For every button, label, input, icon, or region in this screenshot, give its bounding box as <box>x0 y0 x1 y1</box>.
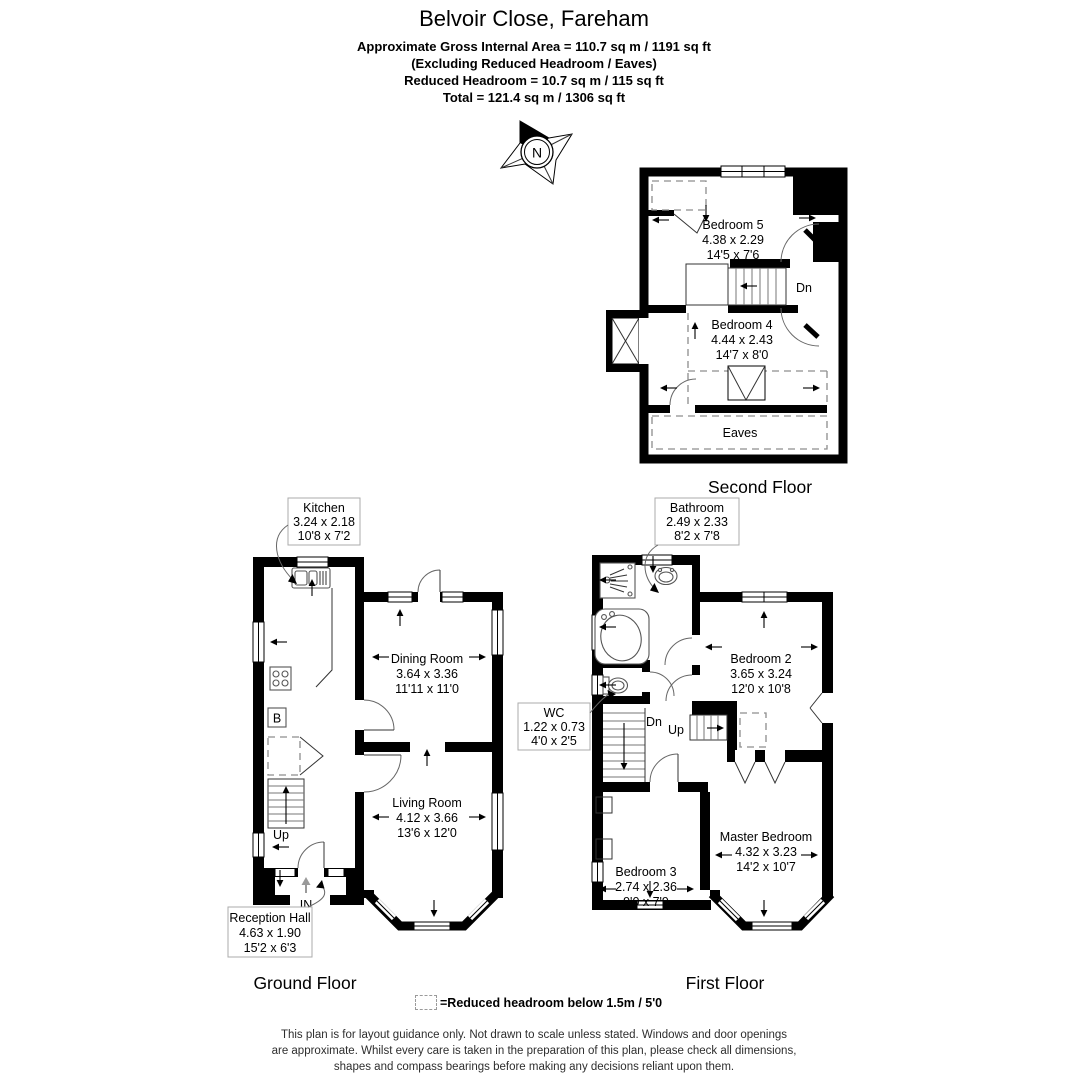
cupboard-reduced-headroom <box>268 737 323 775</box>
wardrobe-reduced-headroom <box>740 713 766 747</box>
hob-icon <box>270 667 291 690</box>
svg-text:1.22 x 0.73: 1.22 x 0.73 <box>523 720 585 734</box>
svg-text:Reception Hall: Reception Hall <box>229 911 310 925</box>
dining-room-label: Dining Room 3.64 x 3.36 11'11 x 11'0 <box>391 652 463 696</box>
svg-text:3.65 x 3.24: 3.65 x 3.24 <box>730 667 792 681</box>
svg-text:2.74 x 2.36: 2.74 x 2.36 <box>615 880 677 894</box>
svg-text:WC: WC <box>544 706 565 720</box>
bedroom2-label: Bedroom 2 3.65 x 3.24 12'0 x 10'8 <box>730 652 792 696</box>
bathtub-icon <box>595 609 649 665</box>
disclaimer-line: This plan is for layout guidance only. N… <box>0 1027 1068 1043</box>
living-door-arc <box>364 755 401 792</box>
stairs-up-icon <box>690 715 727 740</box>
disclaimer: This plan is for layout guidance only. N… <box>0 1027 1068 1075</box>
front-door-arc <box>298 842 324 868</box>
legend-text: =Reduced headroom below 1.5m / 5'0 <box>440 996 662 1010</box>
living-room-label: Living Room 4.12 x 3.66 13'6 x 12'0 <box>392 796 461 840</box>
svg-text:12'0 x 10'8: 12'0 x 10'8 <box>731 682 791 696</box>
eaves-label: Eaves <box>723 426 758 440</box>
reduced-headroom-line: Reduced Headroom = 10.7 sq m / 115 sq ft <box>0 72 1068 89</box>
svg-text:4.38 x 2.29: 4.38 x 2.29 <box>702 233 764 247</box>
svg-text:Bathroom: Bathroom <box>670 501 724 515</box>
dining-door-arc <box>364 700 394 730</box>
svg-text:14'7 x 8'0: 14'7 x 8'0 <box>716 348 769 362</box>
bathroom-label-box: Bathroom 2.49 x 2.33 8'2 x 7'8 <box>655 498 739 545</box>
header-block: Belvoir Close, Fareham Approximate Gross… <box>0 6 1068 106</box>
svg-text:4.63 x 1.90: 4.63 x 1.90 <box>239 926 301 940</box>
bathroom-door-arc <box>665 638 692 665</box>
bedroom2-door-arc <box>666 675 692 701</box>
bedroom4-label: Bedroom 4 4.44 x 2.43 14'7 x 8'0 <box>711 318 773 362</box>
floorplan-page: Belvoir Close, Fareham Approximate Gross… <box>0 0 1068 1080</box>
stairs-down-icon <box>603 708 645 782</box>
bedroom5-window <box>721 166 785 177</box>
bedroom3-side-window <box>592 862 603 882</box>
bedroom3-door-arc <box>650 754 678 782</box>
bedroom5-label: Bedroom 5 4.38 x 2.29 14'5 x 7'6 <box>702 218 764 262</box>
first-floor-title: First Floor <box>645 973 805 994</box>
ground-floor-plan: B Up IN Kitchen 3.24 x 2.18 10' <box>220 495 520 965</box>
svg-text:4.12 x 3.66: 4.12 x 3.66 <box>396 811 458 825</box>
stairs-down-label: Dn <box>646 715 662 729</box>
svg-text:Living Room: Living Room <box>392 796 461 810</box>
master-bay-window <box>712 894 831 930</box>
reception-hall-label-box: Reception Hall 4.63 x 1.90 15'2 x 6'3 <box>228 907 312 957</box>
disclaimer-line: shapes and compass bearings before makin… <box>0 1059 1068 1075</box>
wc-door-arc <box>650 672 674 696</box>
svg-text:2.49 x 2.33: 2.49 x 2.33 <box>666 515 728 529</box>
boiler-icon: B <box>268 708 286 727</box>
svg-text:3.24 x 2.18: 3.24 x 2.18 <box>293 515 355 529</box>
reduced-headroom-swatch <box>415 995 437 1010</box>
gross-area-line: Approximate Gross Internal Area = 110.7 … <box>0 38 1068 55</box>
total-line: Total = 121.4 sq m / 1306 sq ft <box>0 89 1068 106</box>
svg-text:4.32 x 3.23: 4.32 x 3.23 <box>735 845 797 859</box>
basin-icon <box>655 568 677 585</box>
counter-edge <box>316 588 332 687</box>
svg-text:14'2 x 10'7: 14'2 x 10'7 <box>736 860 796 874</box>
bedroom3-label: Bedroom 3 2.74 x 2.36 9'0 x 7'9 <box>615 865 677 909</box>
master-bedroom-label: Master Bedroom 4.32 x 3.23 14'2 x 10'7 <box>720 830 812 874</box>
master-door-leaf <box>735 762 755 783</box>
page-title: Belvoir Close, Fareham <box>0 6 1068 32</box>
stairs-up-label: Up <box>273 828 289 842</box>
svg-text:Master Bedroom: Master Bedroom <box>720 830 812 844</box>
svg-text:Bedroom 2: Bedroom 2 <box>730 652 791 666</box>
entrance-arrow-icon <box>302 877 311 893</box>
svg-text:Bedroom 3: Bedroom 3 <box>615 865 676 879</box>
svg-text:Bedroom 5: Bedroom 5 <box>702 218 763 232</box>
dormer-window <box>606 310 649 372</box>
svg-text:Bedroom 4: Bedroom 4 <box>711 318 772 332</box>
kitchen-window <box>297 557 328 567</box>
stairs-down-label: Dn <box>796 281 812 295</box>
skylight-icon <box>728 366 765 400</box>
first-floor-plan: Dn Up Bathroom 2.49 x 2.33 8'2 x 7'8 WC … <box>500 495 850 965</box>
rear-door-arc <box>418 570 440 592</box>
svg-text:3.64 x 3.36: 3.64 x 3.36 <box>396 667 458 681</box>
second-floor-plan: Dn Bedroom 5 4.38 x 2.29 14'5 x 7'6 <box>600 160 860 470</box>
svg-text:4.44 x 2.43: 4.44 x 2.43 <box>711 333 773 347</box>
svg-text:11'11 x 11'0: 11'11 x 11'0 <box>395 682 459 696</box>
svg-text:14'5 x 7'6: 14'5 x 7'6 <box>707 248 760 262</box>
compass-north-label: N <box>532 145 542 161</box>
kitchen-label-box: Kitchen 3.24 x 2.18 10'8 x 7'2 <box>288 498 360 545</box>
svg-text:10'8 x 7'2: 10'8 x 7'2 <box>298 529 351 543</box>
bedroom2-splay-window <box>810 693 833 723</box>
side-window-hall <box>253 833 264 857</box>
svg-text:Kitchen: Kitchen <box>303 501 345 515</box>
stairs-up-label: Up <box>668 723 684 737</box>
disclaimer-line: are approximate. Whilst every care is ta… <box>0 1043 1068 1059</box>
svg-text:Dining Room: Dining Room <box>391 652 463 666</box>
reduced-headroom-legend: =Reduced headroom below 1.5m / 5'0 <box>415 995 662 1010</box>
bedroom2-window <box>742 592 787 602</box>
ground-floor-title: Ground Floor <box>225 973 385 994</box>
svg-text:15'2 x 6'3: 15'2 x 6'3 <box>244 941 297 955</box>
wc-label-box: WC 1.22 x 0.73 4'0 x 2'5 <box>518 703 590 750</box>
compass-icon: N <box>488 106 598 196</box>
svg-text:8'2 x 7'8: 8'2 x 7'8 <box>674 529 720 543</box>
boiler-label: B <box>273 712 281 726</box>
excluding-line: (Excluding Reduced Headroom / Eaves) <box>0 55 1068 72</box>
svg-text:4'0 x 2'5: 4'0 x 2'5 <box>531 734 577 748</box>
svg-text:13'6 x 12'0: 13'6 x 12'0 <box>397 826 457 840</box>
svg-text:9'0 x 7'9: 9'0 x 7'9 <box>623 895 669 909</box>
master-door-leaf <box>765 762 785 783</box>
side-window-kitchen <box>253 622 264 662</box>
stairs-up-icon <box>268 779 304 828</box>
